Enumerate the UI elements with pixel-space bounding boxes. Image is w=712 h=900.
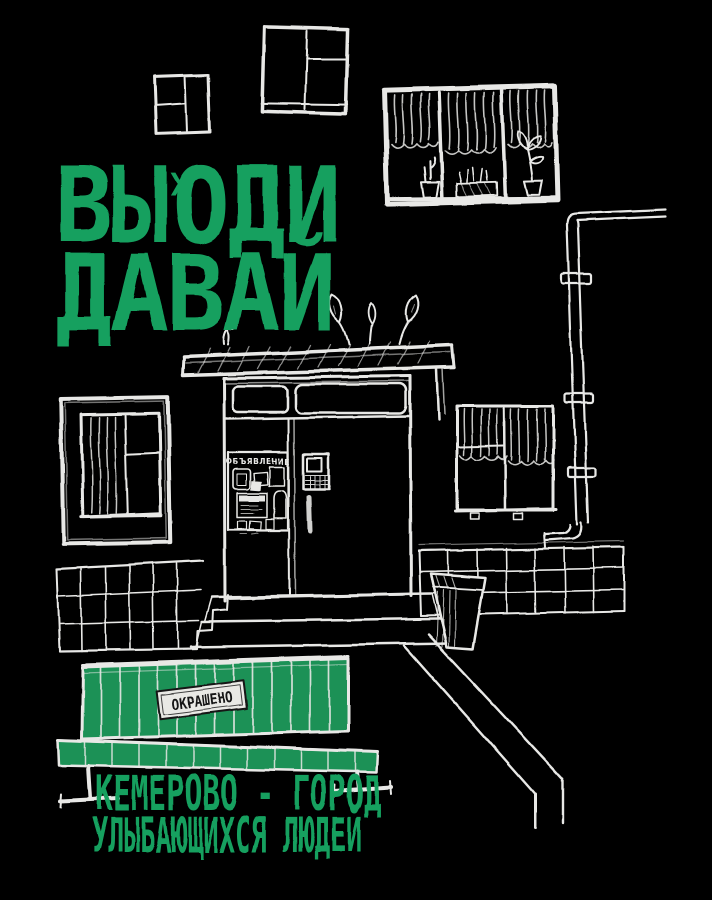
intercom-keypad <box>305 475 328 488</box>
caption-line2: УЛЫБАЮЩИХСЯ ЛЮДЕЙ <box>92 806 362 864</box>
window-left <box>61 397 171 544</box>
white-note <box>251 481 262 491</box>
tiles-left <box>57 561 203 651</box>
title-line2: ДАВАЙ <box>55 231 334 356</box>
poster-canvas: ОКРАШЕНО ВЫ Х ОДИ ДАВАЙ КЕМЕРОВО - ГОРОД… <box>0 0 712 900</box>
trash-bin <box>431 574 485 649</box>
window-top-left-small <box>154 75 210 134</box>
window-kitchen <box>385 86 558 204</box>
plant-leafy <box>517 131 543 195</box>
transom-right <box>296 384 406 413</box>
handrail <box>404 634 563 827</box>
transom-left <box>233 386 288 412</box>
drainpipe <box>544 209 665 547</box>
curtain-right-window <box>460 409 554 465</box>
plant-box <box>457 167 498 196</box>
door-handle <box>309 497 310 531</box>
announcement-board-title: ОБЪЯВЛЕНИЕ <box>226 457 291 466</box>
poster-art: ОКРАШЕНО ВЫ Х ОДИ ДАВАЙ КЕМЕРОВО - ГОРОД… <box>0 0 712 900</box>
steps <box>191 594 452 649</box>
window-top-left-large <box>261 27 349 113</box>
plant-cactus <box>420 157 439 197</box>
intercom <box>303 454 329 489</box>
curtain-left-window <box>90 417 117 513</box>
window-right <box>455 406 556 519</box>
